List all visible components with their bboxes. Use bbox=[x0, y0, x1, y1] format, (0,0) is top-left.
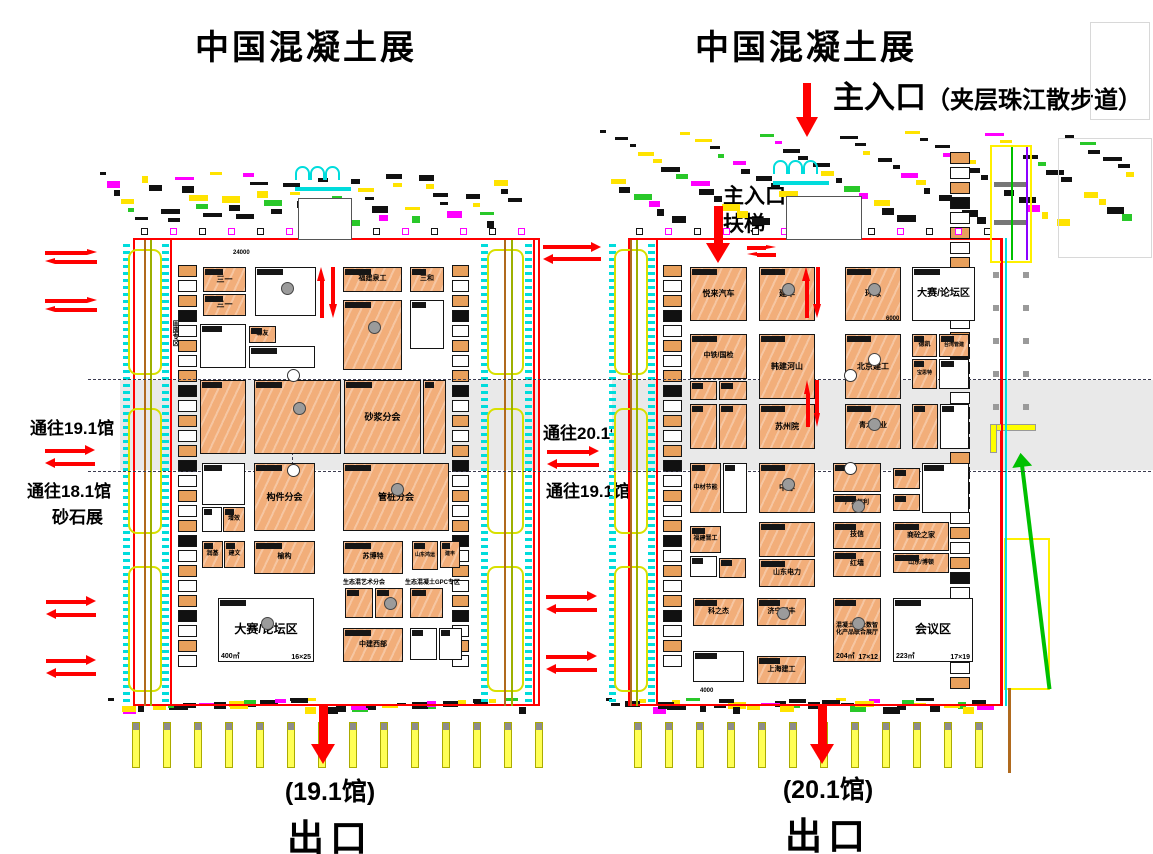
arrow-head bbox=[766, 245, 776, 249]
marker-dot-icon bbox=[368, 321, 381, 334]
arrow-stem bbox=[714, 206, 724, 243]
booth: 建文 bbox=[224, 541, 245, 568]
red-vertical-double-arrow bbox=[802, 267, 822, 318]
facade-mark bbox=[760, 134, 774, 137]
booth-label: 红墙 bbox=[849, 559, 865, 569]
structural-column bbox=[163, 722, 171, 768]
corridor-red-line bbox=[533, 240, 535, 706]
canopy-bar bbox=[773, 181, 829, 185]
facade-mark bbox=[700, 706, 706, 712]
grid-dot bbox=[993, 338, 999, 344]
arrow-head bbox=[329, 304, 337, 318]
arrow-stem bbox=[55, 462, 95, 466]
facade-mark bbox=[634, 194, 652, 200]
corridor-red-line bbox=[656, 240, 658, 706]
booth: 润基 bbox=[202, 541, 223, 568]
mini-booth-cell bbox=[663, 400, 682, 412]
magenta-square bbox=[955, 228, 962, 235]
booth: 台湾管建 bbox=[939, 334, 969, 357]
mini-booth-cell bbox=[178, 505, 197, 517]
booth: 三和 bbox=[410, 267, 444, 292]
arrow-head bbox=[86, 596, 96, 606]
facade-mark bbox=[372, 206, 388, 213]
structural-column bbox=[944, 722, 952, 768]
booth-label: 技信 bbox=[849, 530, 865, 540]
mini-booth-cell bbox=[663, 565, 682, 577]
facade-mark bbox=[271, 209, 282, 214]
facade-mark bbox=[737, 211, 748, 218]
mini-booth-cell bbox=[663, 355, 682, 367]
structural-column bbox=[727, 722, 735, 768]
facade-mark bbox=[114, 190, 120, 196]
mini-booth-cell bbox=[950, 527, 970, 539]
arrow-head bbox=[87, 249, 97, 255]
section-marker-circle bbox=[287, 369, 300, 382]
marker-dot-icon bbox=[868, 418, 881, 431]
mini-booth-cell bbox=[178, 535, 197, 547]
arrow-stem bbox=[757, 253, 776, 257]
red-double-arrow bbox=[45, 249, 97, 266]
section-dashed-line bbox=[88, 471, 1151, 472]
page-title-hall-20-1: 中国混凝土展 bbox=[695, 20, 905, 69]
mini-booth-cell bbox=[663, 370, 682, 382]
grid-dot bbox=[993, 404, 999, 410]
purple-line bbox=[1026, 147, 1028, 260]
mini-booth-cell bbox=[663, 280, 682, 292]
facade-mark bbox=[882, 208, 894, 215]
exit-label: 出口 bbox=[265, 808, 395, 854]
facade-mark bbox=[501, 189, 508, 194]
canopy-bar bbox=[295, 187, 351, 191]
facade-mark bbox=[473, 203, 480, 207]
arrow-head bbox=[813, 304, 821, 318]
facade-mark bbox=[714, 196, 722, 202]
booth: 中建西部 bbox=[343, 628, 403, 662]
booth bbox=[893, 468, 920, 489]
booth: 大赛/论坛区400㎡16×25 bbox=[218, 598, 314, 662]
structural-column bbox=[789, 722, 797, 768]
arrow-head bbox=[810, 744, 834, 764]
mini-booth-cell bbox=[452, 505, 469, 517]
booth-label: 韩建河山 bbox=[770, 361, 804, 372]
booth: 中铁/国检 bbox=[690, 334, 747, 379]
booth bbox=[200, 380, 246, 454]
arrow-stem bbox=[805, 281, 809, 318]
booth: 福建晋工 bbox=[690, 526, 721, 553]
structural-column bbox=[535, 722, 543, 768]
booth-label: 台湾管建 bbox=[943, 342, 965, 350]
boundary-line bbox=[1008, 688, 1011, 773]
facade-mark bbox=[138, 706, 144, 712]
arrow-head bbox=[706, 243, 730, 263]
booth: 构件分会 bbox=[254, 463, 315, 531]
booth-label: 森友 bbox=[255, 330, 269, 339]
booth: 三一 bbox=[203, 267, 246, 292]
marker-dot-icon bbox=[281, 282, 294, 295]
facade-mark bbox=[844, 186, 860, 192]
structural-column bbox=[132, 722, 140, 768]
booth bbox=[693, 651, 744, 682]
mini-booth-cell bbox=[950, 167, 970, 179]
page-title-hall-19-1: 中国混凝土展 bbox=[195, 20, 405, 69]
booth bbox=[200, 324, 246, 368]
entrance-canopy-icon bbox=[295, 166, 351, 186]
arrow-stem bbox=[56, 672, 96, 676]
arrow-stem bbox=[816, 267, 820, 304]
facade-mark bbox=[916, 180, 926, 185]
arrow-stem bbox=[45, 251, 87, 255]
facade-mark bbox=[168, 218, 180, 222]
corridor-red-line bbox=[170, 240, 172, 706]
mini-booth-cell bbox=[178, 355, 197, 367]
red-double-arrow bbox=[547, 446, 599, 470]
booth: 德凯 bbox=[912, 334, 937, 357]
booth-label: 三一 bbox=[216, 299, 234, 310]
facade-mark bbox=[699, 189, 714, 195]
facade-mark bbox=[257, 191, 268, 198]
arrow-head bbox=[45, 458, 55, 468]
mini-booth-cell bbox=[178, 325, 197, 337]
booth: 技信 bbox=[833, 522, 881, 549]
booth-label: 中材节能 bbox=[692, 484, 718, 493]
red-down-arrow bbox=[810, 706, 835, 764]
booth bbox=[202, 507, 222, 532]
booth bbox=[343, 300, 402, 370]
red-double-arrow bbox=[546, 651, 597, 675]
booth-label: 山东鸿运 bbox=[414, 552, 436, 560]
column-square bbox=[373, 228, 380, 235]
mini-booth-cell bbox=[452, 355, 469, 367]
booth bbox=[410, 588, 443, 618]
grid-dot bbox=[993, 371, 999, 377]
arrow-head bbox=[311, 744, 335, 764]
arrow-stem bbox=[543, 245, 591, 249]
structural-column bbox=[380, 722, 388, 768]
facade-mark bbox=[412, 216, 420, 223]
structural-column bbox=[349, 722, 357, 768]
facade-mark bbox=[175, 177, 194, 180]
canopy-arc bbox=[788, 160, 803, 174]
corridor-brown-line bbox=[144, 240, 146, 706]
label-sand-expo: 砂石展 bbox=[52, 503, 103, 528]
facade-mark bbox=[905, 131, 920, 134]
facade-mark bbox=[386, 174, 402, 179]
mini-booth-cell bbox=[950, 557, 970, 569]
mini-booth-cell bbox=[663, 505, 682, 517]
booth bbox=[423, 380, 446, 454]
facade-mark bbox=[203, 213, 222, 217]
red-vertical-double-arrow bbox=[804, 380, 821, 427]
booth-label: 商砼之家 bbox=[906, 531, 936, 541]
facade-mark bbox=[264, 200, 282, 206]
structural-column bbox=[194, 722, 202, 768]
magenta-square bbox=[665, 228, 672, 235]
arrow-head bbox=[45, 258, 55, 264]
background-outline bbox=[1058, 138, 1152, 258]
booth bbox=[719, 404, 747, 449]
mini-booth-cell bbox=[452, 370, 469, 382]
mini-booth-cell bbox=[452, 595, 469, 607]
booth bbox=[690, 381, 717, 400]
facade-mark bbox=[222, 196, 240, 203]
mini-booth-cell bbox=[178, 640, 197, 652]
red-double-arrow bbox=[546, 591, 597, 615]
structural-column bbox=[287, 722, 295, 768]
exit-hall-label: (19.1馆) bbox=[265, 772, 395, 808]
booth-label: 增效 bbox=[227, 515, 241, 524]
red-down-arrow bbox=[796, 83, 818, 137]
facade-mark bbox=[718, 154, 724, 158]
booth bbox=[759, 522, 815, 557]
mini-booth-cell bbox=[663, 535, 682, 547]
mini-booth-cell bbox=[950, 677, 970, 689]
mini-booth-cell bbox=[663, 610, 682, 622]
arrow-stem bbox=[815, 380, 819, 413]
arrow-stem bbox=[806, 394, 810, 427]
booth: 山东/博顿 bbox=[893, 553, 949, 573]
label-to-18-1: 通往18.1馆 bbox=[27, 477, 111, 502]
structural-column bbox=[411, 722, 419, 768]
boundary-line bbox=[1001, 238, 1003, 706]
corridor-brown-line bbox=[504, 240, 506, 706]
booth: 榆构 bbox=[254, 541, 315, 574]
booth: 广东恒利 bbox=[833, 494, 881, 513]
booth: 福建泉工 bbox=[343, 267, 402, 292]
booth-label: 上海建工 bbox=[767, 665, 797, 675]
arrow-stem bbox=[747, 246, 766, 250]
booth: 混凝土行业数智化产品联合展厅204㎡17×12 bbox=[833, 598, 881, 662]
facade-mark bbox=[379, 215, 388, 221]
facade-mark bbox=[878, 158, 892, 162]
corridor-olive-line bbox=[511, 240, 513, 706]
entrance-canopy-icon bbox=[773, 160, 829, 180]
grid-dot bbox=[1023, 404, 1029, 410]
column-square bbox=[694, 228, 701, 235]
arrow-stem bbox=[55, 308, 97, 312]
mini-booth-cell bbox=[452, 280, 469, 292]
booth-label: 科之杰 bbox=[707, 607, 730, 617]
facade-mark bbox=[657, 209, 664, 216]
canopy-arc bbox=[773, 160, 788, 174]
marker-dot-icon bbox=[391, 483, 404, 496]
structural-column bbox=[975, 722, 983, 768]
facade-mark bbox=[365, 197, 374, 200]
arrow-stem bbox=[547, 450, 589, 454]
facade-mark bbox=[290, 192, 300, 195]
booth-label: 苏博特 bbox=[362, 552, 385, 562]
mini-booth-cell bbox=[178, 595, 197, 607]
concrete-expo-floor-plan: 中国混凝土展 中国混凝土展 主入口（夹层珠江散步道） 主入口 扶梯 通往19.1… bbox=[0, 0, 1153, 854]
canopy-arc bbox=[803, 160, 818, 174]
booth: 上海建工 bbox=[757, 656, 806, 684]
mini-booth-cell bbox=[452, 385, 469, 397]
booth-area: 204㎡ bbox=[836, 651, 855, 661]
arrow-head bbox=[591, 242, 601, 252]
arrow-head bbox=[45, 306, 55, 312]
booth-label: 大赛/论坛区 bbox=[916, 287, 971, 301]
facade-mark bbox=[619, 187, 630, 193]
booth-dimensions: 16×25 bbox=[291, 654, 311, 661]
mini-booth-cell bbox=[663, 430, 682, 442]
corridor-spring bbox=[162, 244, 169, 702]
column-square bbox=[636, 228, 643, 235]
facade-mark bbox=[149, 185, 162, 191]
mini-booth-cell bbox=[663, 625, 682, 637]
arrow-stem bbox=[55, 260, 97, 264]
grid-dot bbox=[1023, 272, 1029, 278]
mini-booth-cell bbox=[452, 400, 469, 412]
section-marker-circle bbox=[844, 369, 857, 382]
booth: 科之杰 bbox=[693, 598, 744, 626]
facade-mark bbox=[196, 204, 208, 209]
inner-entrance-line2: 扶梯 bbox=[723, 211, 786, 239]
facade-mark bbox=[182, 186, 194, 193]
facade-mark bbox=[440, 202, 448, 205]
booth bbox=[719, 381, 747, 400]
arrow-stem bbox=[818, 706, 828, 744]
booth bbox=[410, 300, 444, 349]
mini-booth-cell bbox=[178, 520, 197, 532]
booth-label: 山东/博顿 bbox=[907, 559, 935, 568]
booth: 增效 bbox=[223, 507, 245, 532]
arrow-stem bbox=[553, 257, 601, 261]
facade-mark bbox=[1000, 140, 1012, 143]
mini-booth-cell bbox=[950, 662, 970, 674]
red-down-arrow bbox=[706, 206, 731, 263]
booth-label: 山东电力 bbox=[772, 568, 802, 578]
structural-column bbox=[913, 722, 921, 768]
grid-dot bbox=[993, 272, 999, 278]
facade-mark bbox=[121, 199, 134, 204]
arrow-stem bbox=[546, 655, 587, 659]
arrow-stem bbox=[45, 449, 85, 453]
marker-dot-icon bbox=[777, 607, 790, 620]
facade-mark bbox=[611, 179, 626, 184]
arrow-stem bbox=[546, 595, 587, 599]
structural-column bbox=[758, 722, 766, 768]
mini-booth-cell bbox=[178, 655, 197, 667]
facade-mark bbox=[419, 175, 434, 181]
red-double-arrow bbox=[46, 655, 96, 680]
booth bbox=[940, 404, 969, 449]
structural-column bbox=[634, 722, 642, 768]
column-square bbox=[752, 228, 759, 235]
arrow-head bbox=[747, 252, 757, 256]
arrow-head bbox=[46, 609, 56, 619]
facade-mark bbox=[480, 212, 494, 215]
facade-mark bbox=[236, 214, 254, 219]
column-square bbox=[199, 228, 206, 235]
mini-booth-cell bbox=[950, 542, 970, 554]
facade-mark bbox=[615, 137, 628, 140]
column-square bbox=[257, 228, 264, 235]
facade-mark bbox=[836, 178, 842, 183]
mini-booth-cell bbox=[663, 595, 682, 607]
mini-booth-cell bbox=[178, 430, 197, 442]
arrow-head bbox=[802, 267, 810, 281]
facade-mark bbox=[733, 161, 746, 165]
facade-mark bbox=[189, 195, 208, 201]
booth: 环球 bbox=[845, 267, 901, 321]
caption-text: 生态混凝土GPC专区 bbox=[405, 577, 460, 586]
booth bbox=[723, 463, 747, 513]
booth bbox=[833, 463, 881, 492]
booth bbox=[893, 494, 920, 511]
mini-booth-cell bbox=[663, 415, 682, 427]
mini-booth-cell bbox=[663, 265, 682, 277]
facade-mark bbox=[775, 141, 782, 144]
booth bbox=[939, 359, 969, 389]
booth: 山东电力 bbox=[759, 559, 815, 587]
corridor bbox=[606, 240, 658, 706]
facade-mark bbox=[752, 218, 770, 225]
facade-mark bbox=[695, 139, 712, 142]
facade-mark bbox=[780, 706, 794, 712]
facade-mark bbox=[358, 188, 374, 192]
grid-dot bbox=[993, 305, 999, 311]
arrow-head bbox=[86, 655, 96, 665]
booth: 建丰 bbox=[440, 541, 460, 568]
facade-mark bbox=[519, 707, 526, 714]
booth bbox=[690, 404, 717, 449]
mini-booth-cell bbox=[663, 580, 682, 592]
facade-mark bbox=[128, 208, 134, 212]
facade-mark bbox=[855, 143, 866, 146]
facade-mark bbox=[1042, 212, 1048, 219]
facade-mark bbox=[653, 159, 662, 163]
booth: 会议区223㎡17×19 bbox=[893, 598, 973, 662]
arrow-head bbox=[547, 459, 557, 469]
main-entrance-text: 主入口 bbox=[833, 80, 926, 115]
facade-mark bbox=[161, 209, 180, 214]
arrow-head bbox=[587, 651, 597, 661]
caption-text: 6000 bbox=[886, 316, 899, 322]
booth bbox=[439, 628, 462, 660]
booth bbox=[912, 404, 938, 449]
arrow-stem bbox=[557, 463, 599, 467]
mini-booth-cell bbox=[950, 392, 970, 404]
facade-mark bbox=[447, 211, 462, 218]
facade-mark bbox=[963, 707, 974, 714]
stair-frame bbox=[990, 145, 1032, 263]
facade-mark bbox=[710, 146, 720, 149]
facade-mark bbox=[487, 221, 494, 228]
booth-label: 福建晋工 bbox=[692, 535, 718, 544]
facade-mark bbox=[977, 217, 986, 224]
mini-booth-cell bbox=[452, 310, 469, 322]
booth bbox=[345, 588, 373, 618]
yellow-path bbox=[990, 424, 997, 453]
mini-booth-cell bbox=[663, 295, 682, 307]
facade-mark bbox=[691, 181, 710, 186]
facade-mark bbox=[733, 707, 740, 714]
mini-booth-cell bbox=[178, 580, 197, 592]
structural-column bbox=[473, 722, 481, 768]
green-line bbox=[1011, 147, 1013, 260]
green-arrow-head bbox=[1011, 452, 1033, 468]
booth bbox=[922, 463, 969, 513]
caption-text: 生态混艺术分会 bbox=[343, 577, 385, 586]
facade-mark bbox=[638, 152, 654, 156]
arrow-head bbox=[589, 446, 599, 456]
marker-dot-icon bbox=[261, 617, 274, 630]
mini-booth-cell bbox=[452, 325, 469, 337]
booth-area: 400㎡ bbox=[221, 651, 240, 661]
booth: 苏博特 bbox=[343, 541, 403, 574]
structural-column bbox=[665, 722, 673, 768]
facade-mark bbox=[897, 215, 916, 222]
mini-booth-cell bbox=[178, 610, 197, 622]
